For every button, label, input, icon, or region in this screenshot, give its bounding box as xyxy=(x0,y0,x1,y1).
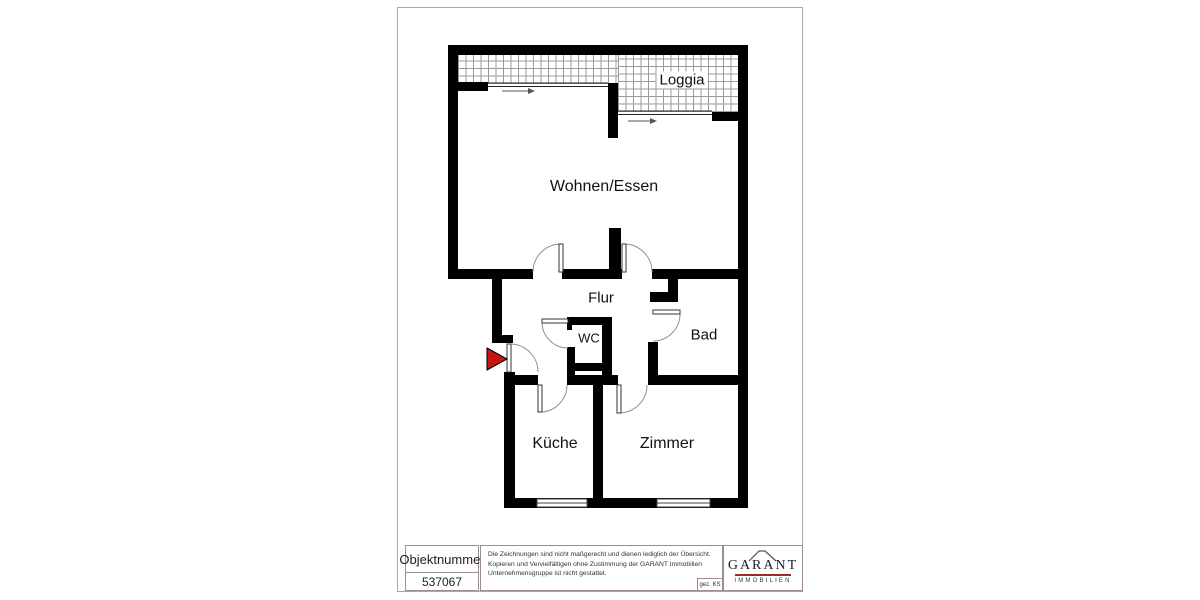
disclaimer-line-3: Unternehmensgruppe ist nicht gestattet. xyxy=(488,569,722,579)
wall-bottom xyxy=(504,498,748,508)
room-label-kueche: Küche xyxy=(532,435,577,453)
wall-wc-right xyxy=(602,317,612,385)
logo-underline xyxy=(735,574,791,576)
wall-loggia-right-stub xyxy=(712,112,738,121)
room-label-flur: Flur xyxy=(588,290,614,307)
room-label-bad: Bad xyxy=(691,327,718,344)
disclaimer-line-1: Die Zeichnungen sind nicht maßgerecht un… xyxy=(488,550,722,560)
wall-wc-left-upper xyxy=(567,317,572,330)
floorplan-page: Loggia Wohnen/Essen Flur WC Bad Küche Zi… xyxy=(0,0,1200,600)
wall-left-upper xyxy=(448,45,458,279)
wall-entrance-stub xyxy=(492,335,513,343)
disclaimer-box: Die Zeichnungen sind nicht maßgerecht un… xyxy=(480,545,723,591)
wall-flur-bottom-a xyxy=(504,375,538,385)
logo-wordmark: GARANT xyxy=(724,558,802,574)
disclaimer-text: Die Zeichnungen sind nicht maßgerecht un… xyxy=(481,546,722,579)
logo-subtitle: IMMOBILIEN xyxy=(724,578,802,584)
object-number-box: Objektnummer 537067 xyxy=(405,545,479,591)
wall-flur-bottom-c xyxy=(648,375,748,385)
wall-center-stub xyxy=(609,228,621,269)
wall-wohnen-bottom-c xyxy=(652,269,748,279)
wall-loggia-left-stub xyxy=(458,82,488,91)
room-label-zimmer: Zimmer xyxy=(640,435,694,453)
signed-initials: gez. KS xyxy=(697,578,723,591)
loggia-hatch-left xyxy=(458,55,618,84)
wall-wohnen-bottom-b xyxy=(562,269,622,279)
wall-bad-left xyxy=(648,342,658,375)
wall-loggia-mid xyxy=(608,83,618,138)
wall-kueche-left xyxy=(504,372,515,508)
object-number-label: Objektnummer xyxy=(406,546,478,573)
wall-flur-left xyxy=(492,279,502,335)
wall-wc-bottom xyxy=(567,363,612,371)
garant-logo: GARANT IMMOBILIEN xyxy=(723,545,803,591)
room-label-wc: WC xyxy=(578,331,600,346)
object-number-value: 537067 xyxy=(406,573,478,590)
wall-bad-top xyxy=(650,292,678,302)
wall-kueche-zimmer-divider xyxy=(593,375,603,508)
room-label-loggia: Loggia xyxy=(656,72,707,89)
disclaimer-line-2: Kopieren und Vervielfältigen ohne Zustim… xyxy=(488,560,722,570)
room-label-wohnen-essen: Wohnen/Essen xyxy=(550,178,658,196)
wall-wohnen-bottom-a xyxy=(448,269,533,279)
wall-top xyxy=(448,45,748,55)
